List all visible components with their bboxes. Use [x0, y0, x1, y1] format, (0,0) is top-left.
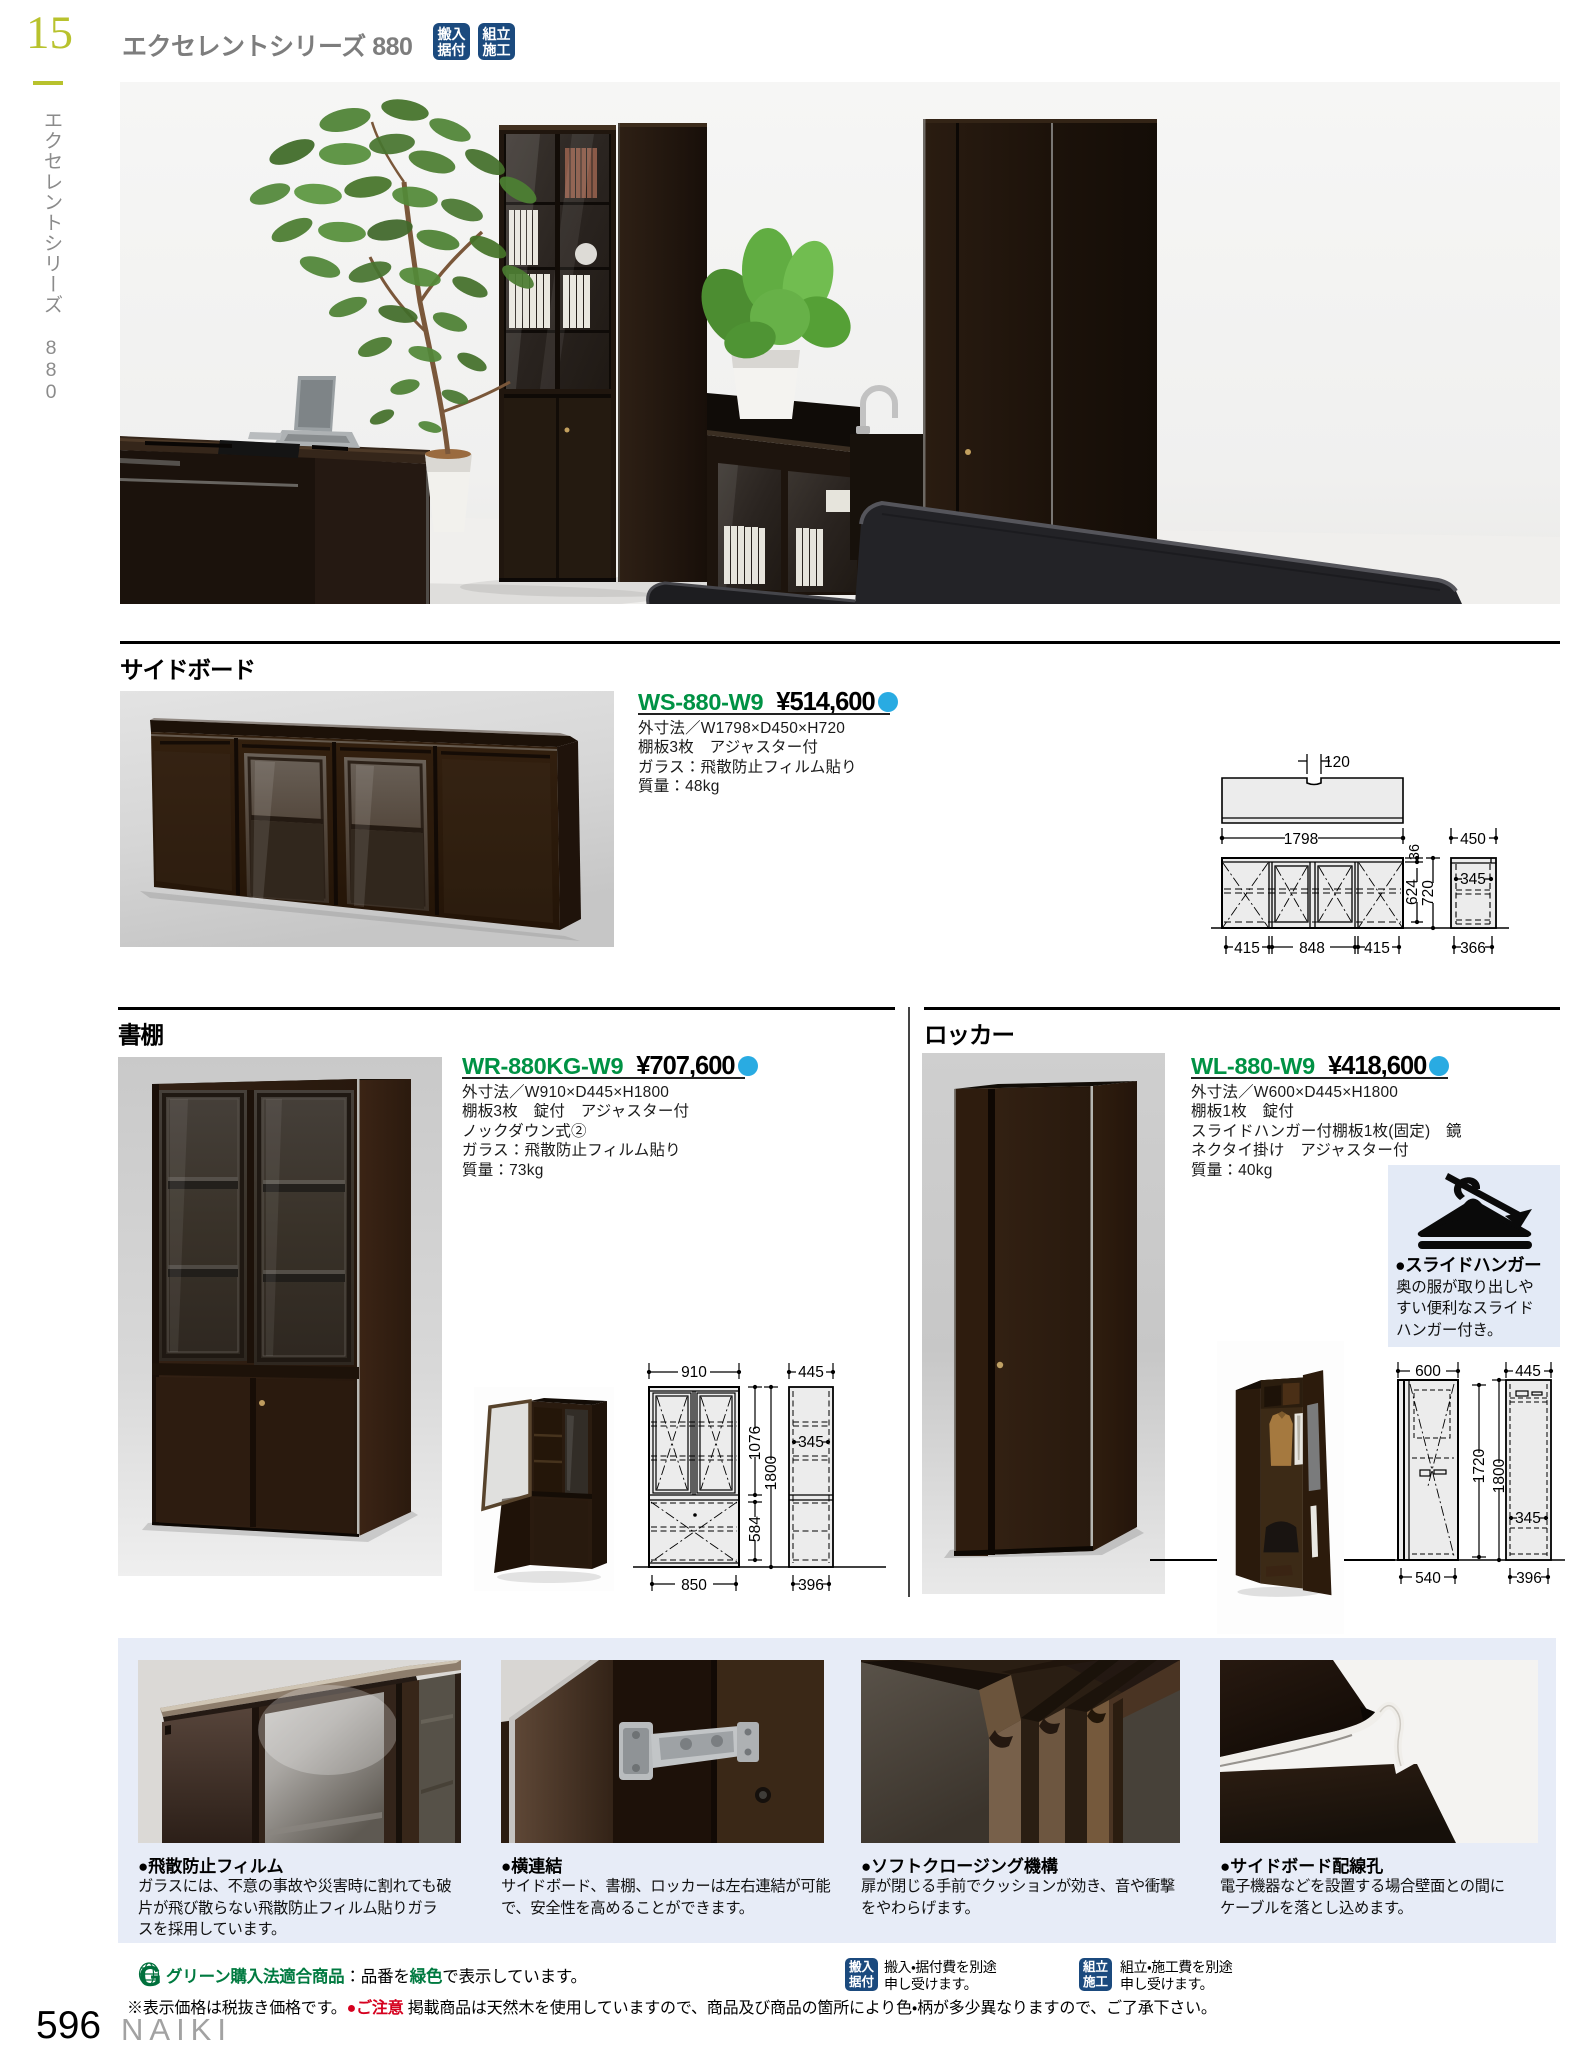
svg-text:36: 36	[1407, 844, 1423, 860]
svg-text:396: 396	[1516, 1570, 1542, 1587]
svg-text:366: 366	[1460, 940, 1486, 957]
svg-text:624: 624	[1404, 879, 1421, 905]
svg-text:345: 345	[798, 1434, 824, 1451]
svg-text:1798: 1798	[1284, 831, 1318, 848]
svg-text:396: 396	[798, 1577, 824, 1594]
svg-text:1800: 1800	[1491, 1458, 1508, 1493]
svg-text:540: 540	[1415, 1570, 1441, 1587]
svg-text:1076: 1076	[747, 1426, 764, 1460]
svg-text:345: 345	[1515, 1510, 1541, 1527]
svg-text:720: 720	[1420, 880, 1437, 906]
svg-text:584: 584	[747, 1516, 764, 1542]
svg-text:415: 415	[1234, 940, 1260, 957]
svg-text:850: 850	[681, 1577, 707, 1594]
svg-text:910: 910	[681, 1364, 707, 1381]
svg-text:450: 450	[1460, 831, 1486, 848]
svg-text:345: 345	[1460, 871, 1486, 888]
svg-text:1720: 1720	[1471, 1448, 1488, 1483]
svg-text:600: 600	[1415, 1363, 1441, 1380]
svg-text:1800: 1800	[763, 1455, 780, 1490]
svg-text:445: 445	[798, 1364, 824, 1381]
svg-text:120: 120	[1324, 754, 1350, 771]
svg-text:445: 445	[1515, 1363, 1541, 1380]
svg-text:415: 415	[1364, 940, 1390, 957]
svg-text:848: 848	[1299, 940, 1325, 957]
